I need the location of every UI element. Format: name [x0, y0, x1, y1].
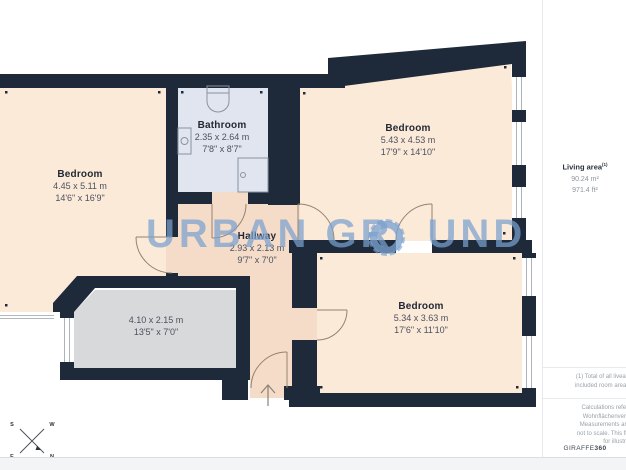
room-dim-m: 5.43 x 4.53 m [381, 135, 436, 147]
floorplan-page: Bedroom 4.45 x 5.11 m 14'6" x 16'9" Bath… [0, 0, 626, 470]
footnote: (1) Total of all liveable fully and part… [537, 373, 626, 390]
disclaimer: Calculations reference the German Wohnfl… [537, 404, 626, 447]
windows-bedroom-top-right [512, 77, 526, 218]
room-label-bedroom-left: Bedroom 4.45 x 5.11 m 14'6" x 16'9" [53, 168, 107, 204]
room-name: Bathroom [195, 119, 250, 132]
watermark-text: URBAN GRUND [146, 212, 526, 257]
disclaimer-line: Calculations reference the German [537, 404, 626, 413]
disclaimer-line: Wohnflächenverordnung (WoFlV). [537, 413, 626, 422]
room-dim-ft: 17'6" x 11'10" [394, 325, 449, 337]
compass-icon [20, 429, 44, 453]
room-dim-ft: 14'6" x 16'9" [53, 193, 107, 205]
compass-west: W [49, 422, 54, 428]
panel-rule-1 [543, 367, 626, 368]
room-label-bedroom-bottom-right: Bedroom 5.34 x 3.63 m 17'6" x 11'10" [394, 300, 449, 336]
watermark-sun-icon [370, 221, 403, 254]
compass-south: S [10, 422, 14, 428]
living-area-m2: 90.24 m² [543, 176, 626, 183]
room-dim-ft: 7'8" x 8'7" [195, 144, 250, 156]
room-dim-ft: 17'9" x 14'10" [381, 147, 436, 159]
living-area-block: Living area(1) 90.24 m² 971.4 ft² [543, 162, 626, 194]
window-terrace [60, 318, 74, 362]
room-dim-m: 4.10 x 2.15 m [129, 315, 184, 327]
window-bedroom-left [0, 312, 54, 322]
disclaimer-line: not to scale. This floor plan is intende… [537, 430, 626, 439]
living-area-ft2: 971.4 ft² [543, 187, 626, 194]
bottom-strip [0, 457, 626, 470]
watermark-left: URBAN GR [146, 212, 394, 256]
brand-logo: GIRAFFE360 [543, 445, 626, 452]
footnote-line: included room areas (100%, 50%, 25%) [537, 382, 626, 391]
room-name: Bedroom [394, 300, 449, 313]
panel-rule-2 [543, 398, 626, 399]
room-dim-m: 4.45 x 5.11 m [53, 181, 107, 193]
room-dim-ft: 13'5" x 7'0" [129, 327, 184, 339]
room-dim-m: 2.35 x 2.64 m [195, 132, 250, 144]
room-label-bathroom: Bathroom 2.35 x 2.64 m 7'8" x 8'7" [195, 119, 250, 155]
watermark-right: UND [428, 212, 527, 256]
living-area-label: Living area(1) [543, 162, 626, 172]
room-name: Bedroom [53, 168, 107, 181]
footnote-line: (1) Total of all liveable fully and part… [537, 373, 626, 382]
room-name: Bedroom [381, 122, 436, 135]
room-label-bedroom-top-right: Bedroom 5.43 x 4.53 m 17'9" x 14'10" [381, 122, 436, 158]
disclaimer-line: Measurements are approximate and [537, 421, 626, 430]
room-dim-m: 5.34 x 3.63 m [394, 313, 449, 325]
room-label-terrace: 4.10 x 2.15 m 13'5" x 7'0" [129, 315, 184, 338]
